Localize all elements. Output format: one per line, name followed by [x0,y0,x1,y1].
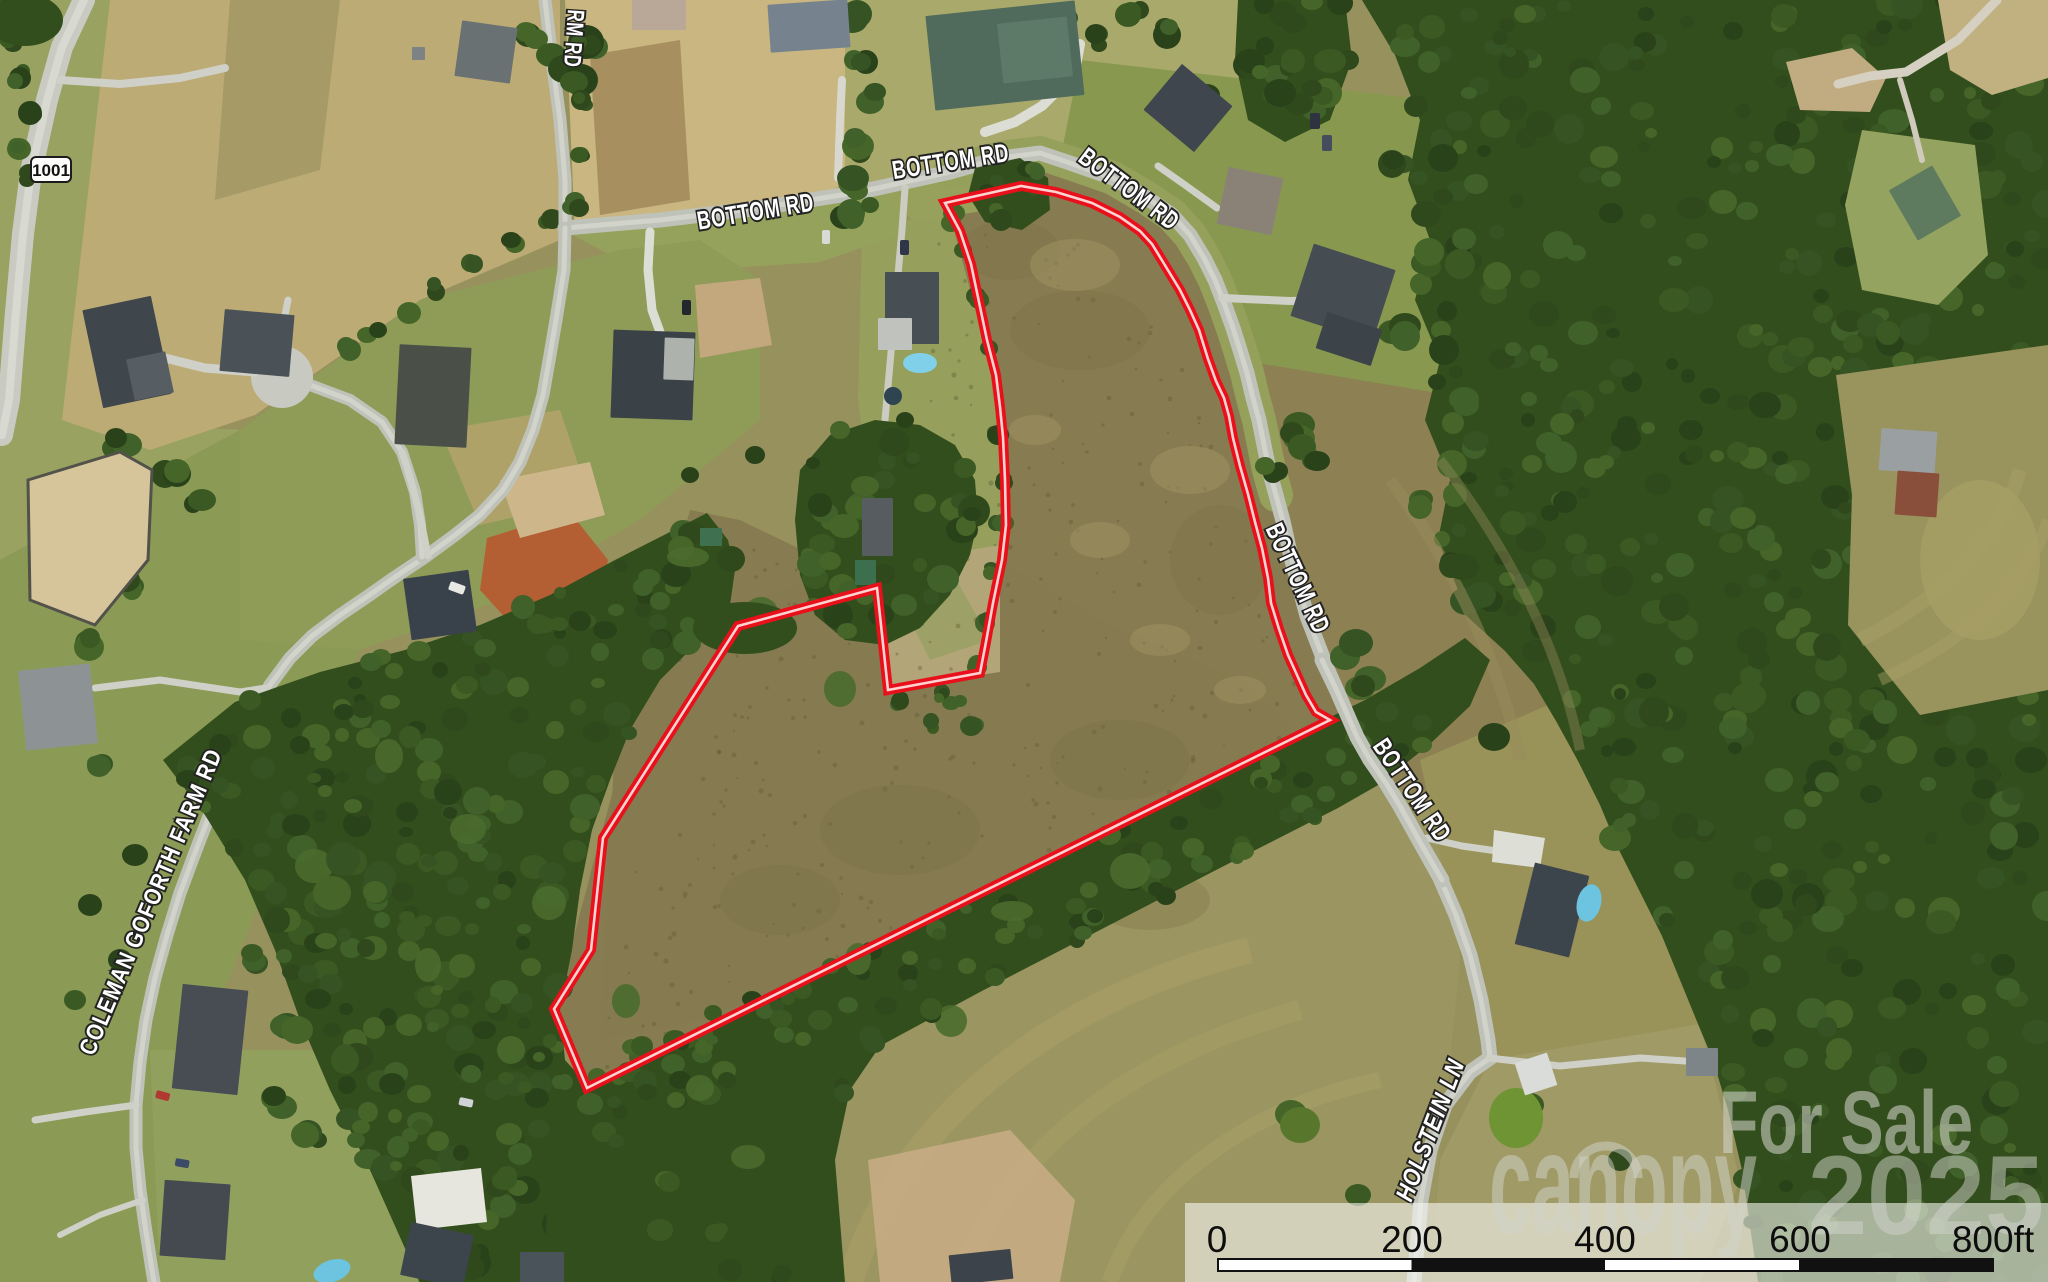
svg-text:1001: 1001 [32,161,70,180]
svg-text:0: 0 [1207,1219,1228,1260]
svg-text:400: 400 [1574,1219,1636,1260]
svg-text:200: 200 [1381,1219,1443,1260]
svg-text:800ft: 800ft [1952,1219,2035,1260]
svg-text:RM RD: RM RD [558,9,589,69]
svg-text:600: 600 [1769,1219,1831,1260]
